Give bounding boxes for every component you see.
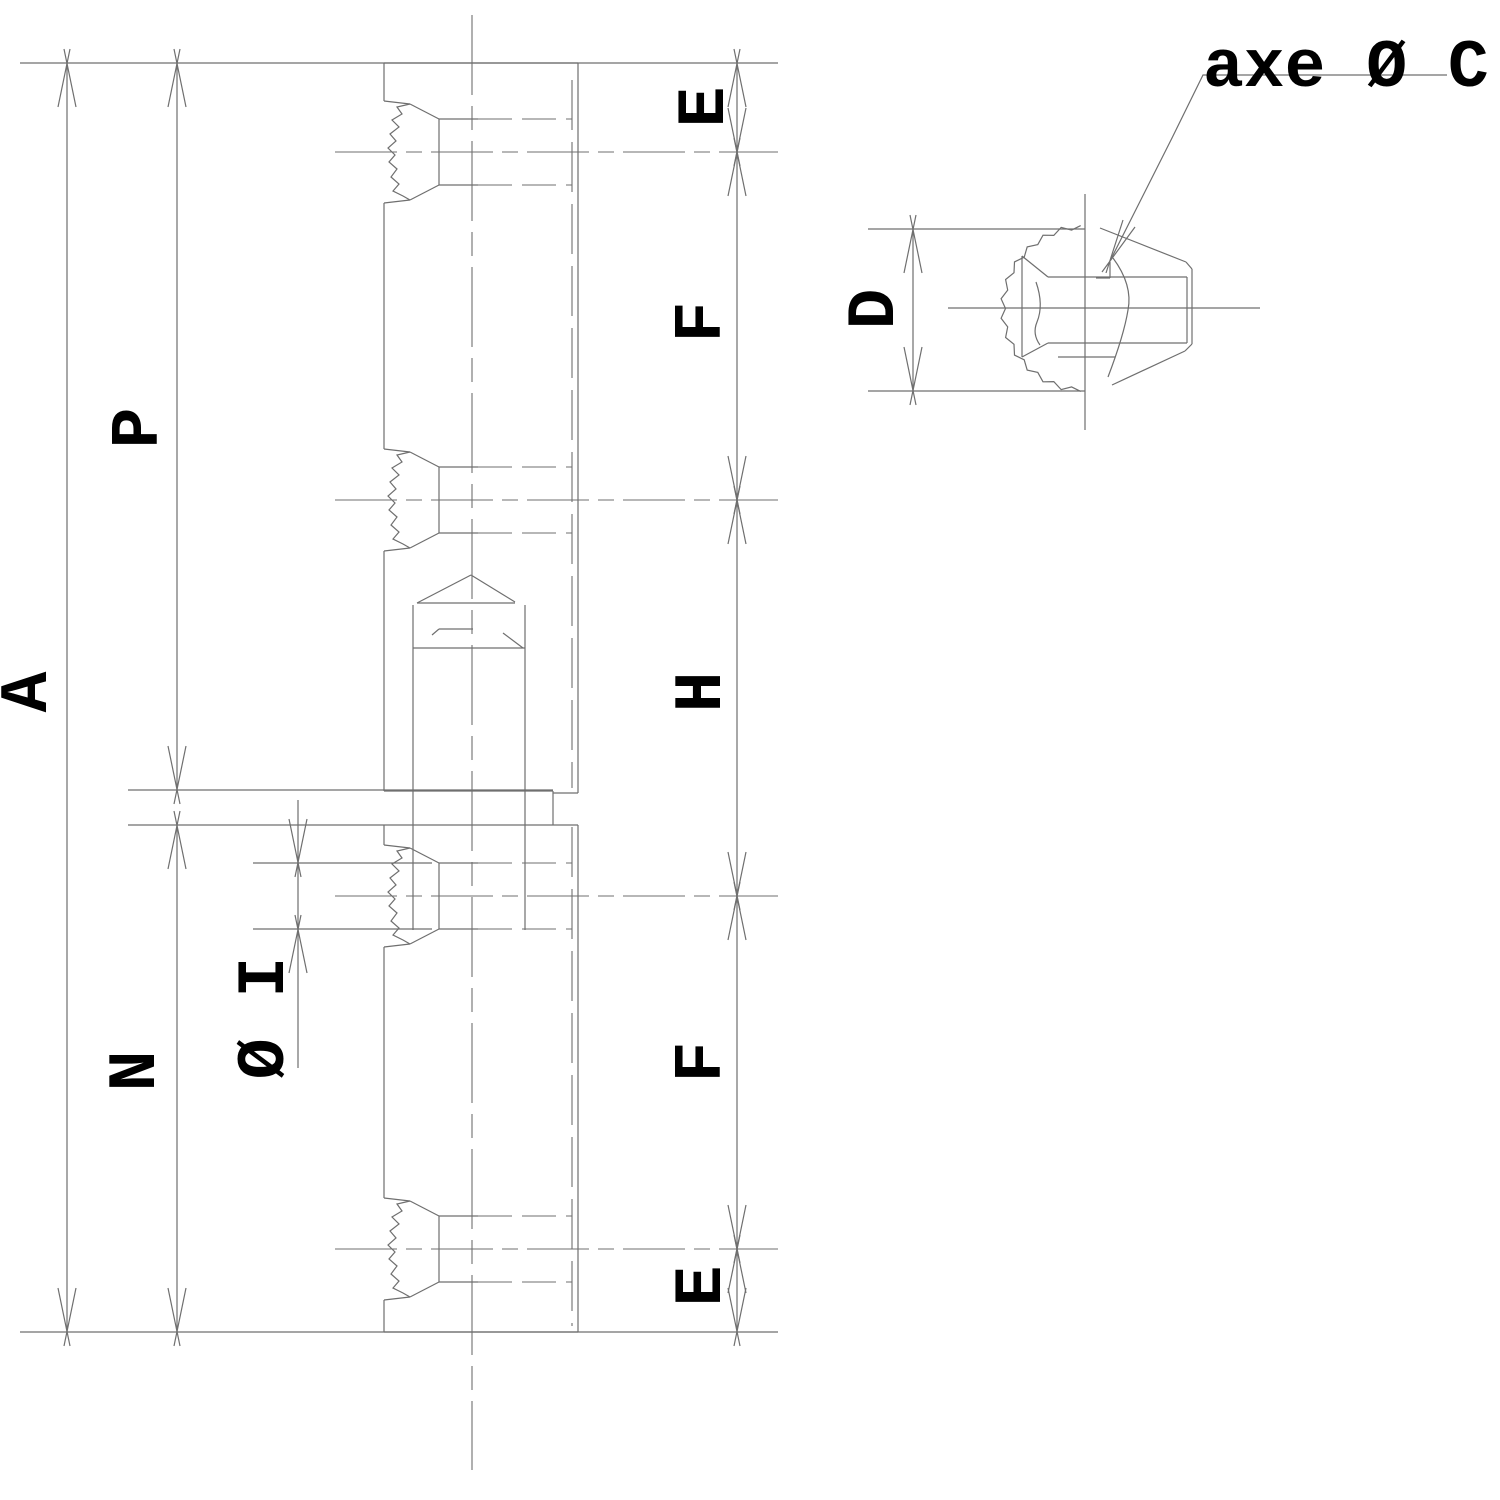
dim-label-n: N — [98, 1051, 175, 1092]
knuckle-weld-joints — [384, 101, 572, 1300]
axis-label: axe Ø C — [1203, 30, 1489, 107]
segment-label-f-bottom: F — [664, 1042, 741, 1083]
dim-label-d: D — [837, 289, 914, 330]
segment-label-e-bottom: E — [664, 1266, 741, 1307]
segment-label-f-top: F — [664, 302, 741, 343]
side-section-view — [384, 63, 578, 1332]
extension-lines — [20, 63, 1085, 1332]
pin-section — [413, 575, 525, 930]
technical-drawing-canvas: A P N Ø I E F H F E D axe Ø C — [0, 0, 1500, 1500]
dimension-labels: A P N Ø I E F H F E D axe Ø C — [0, 30, 1489, 1306]
dim-label-a: A — [0, 671, 67, 712]
dimension-arrowheads — [58, 49, 922, 1346]
dim-label-p: P — [101, 408, 178, 449]
drawing-page: A P N Ø I E F H F E D axe Ø C — [0, 0, 1500, 1500]
segment-label-h: H — [664, 672, 741, 713]
centerlines — [472, 15, 572, 1470]
dimension-lines — [67, 63, 913, 1332]
dim-label-diameter-i: Ø I — [227, 957, 304, 1079]
segment-label-e-top: E — [667, 87, 744, 128]
